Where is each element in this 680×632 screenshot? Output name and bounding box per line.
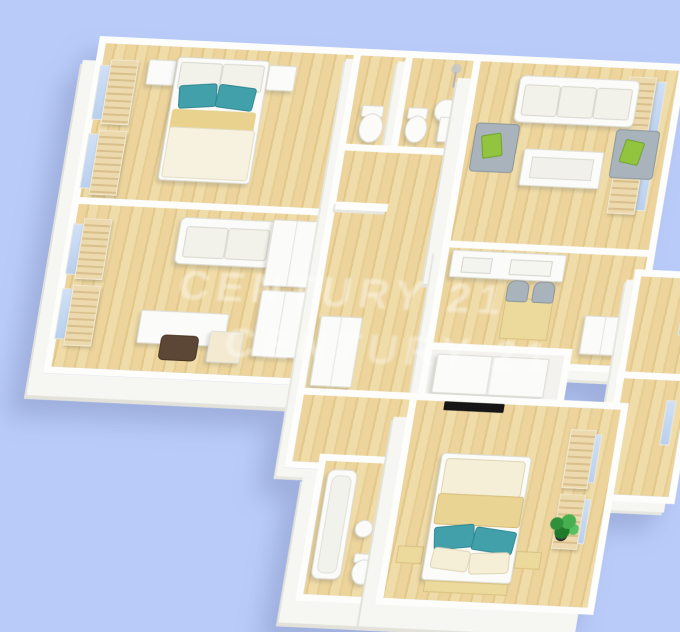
foot-pillow [429,546,472,572]
storage-wardrobe [431,354,550,399]
desk-chair [157,334,199,361]
green-pillow [481,133,502,159]
room-living [440,54,680,272]
bathtub-icon [310,469,358,580]
side-table [513,551,542,570]
duvet [161,126,256,181]
kitchen-counter [449,250,568,283]
coffee-table [518,148,604,189]
nightstand [145,59,177,86]
nightstand [265,65,297,92]
room-study [43,197,342,386]
foot-pillow [468,552,510,574]
stool-icon [353,520,374,539]
cooktop-icon [508,259,553,277]
double-bed [157,57,270,185]
teal-pillow [470,526,517,556]
coffee-table-top [529,157,595,182]
drawer-unit [205,331,244,364]
toilet-icon [356,113,385,144]
kitchen-sink-icon [460,257,493,274]
teal-pillow [214,84,257,112]
armchair-left [468,122,520,173]
hall-closet [309,315,363,388]
teal-pillow [178,83,218,109]
floorplan-canvas: CENTURY 21 CENTURY 21 [0,0,680,632]
green-pillow [618,139,645,166]
potted-plant-icon [545,513,581,540]
wall-stub [335,201,388,211]
fridge-cabinet [579,315,628,356]
room-master-bedroom [375,393,629,615]
tan-blanket [433,493,524,528]
apartment-3d-plan: CENTURY 21 CENTURY 21 [8,36,680,612]
shower-hose-icon [452,72,457,88]
dining-chair [505,280,531,303]
toilet-icon [349,559,375,586]
armchair-right [608,129,660,180]
side-table [395,545,424,564]
three-seat-sofa [513,75,641,128]
bathtub-basin [316,475,353,574]
toilet-icon [403,115,430,143]
wardrobe-cabinet [263,219,322,288]
loveseat [174,217,278,269]
wall-tv-icon [443,401,504,413]
dining-chair [531,281,557,304]
dining-table [499,298,554,341]
window-glass [659,400,677,446]
wardrobe-cabinet [251,290,310,359]
